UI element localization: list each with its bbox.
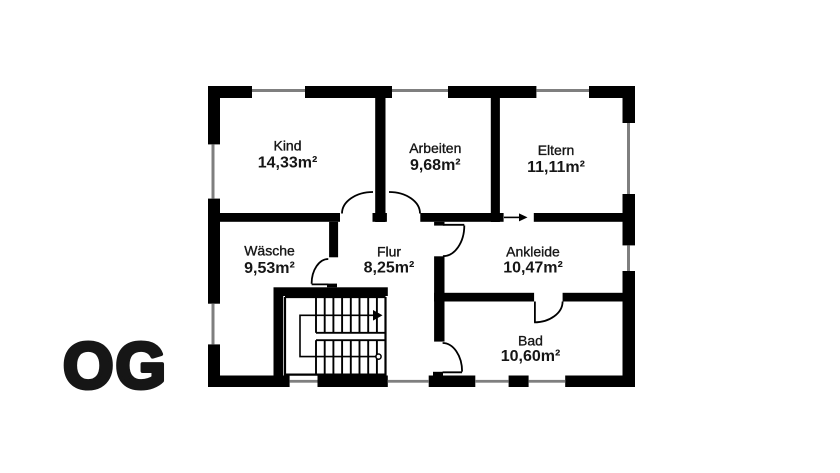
svg-text:11,11m²: 11,11m² [527,159,585,176]
svg-text:Wäsche: Wäsche [244,243,295,259]
svg-text:9,53m²: 9,53m² [244,260,295,277]
svg-text:14,33m²: 14,33m² [258,154,318,171]
svg-text:Eltern: Eltern [538,142,575,158]
svg-text:Flur: Flur [377,243,401,259]
svg-text:Bad: Bad [518,333,543,349]
svg-text:OG: OG [63,329,168,402]
svg-text:9,68m²: 9,68m² [410,157,461,174]
svg-text:8,25m²: 8,25m² [364,259,415,276]
svg-text:10,47m²: 10,47m² [503,259,563,276]
svg-text:Arbeiten: Arbeiten [409,140,461,156]
svg-text:Ankleide: Ankleide [506,243,560,259]
svg-text:Kind: Kind [273,138,301,154]
svg-text:10,60m²: 10,60m² [501,348,561,365]
